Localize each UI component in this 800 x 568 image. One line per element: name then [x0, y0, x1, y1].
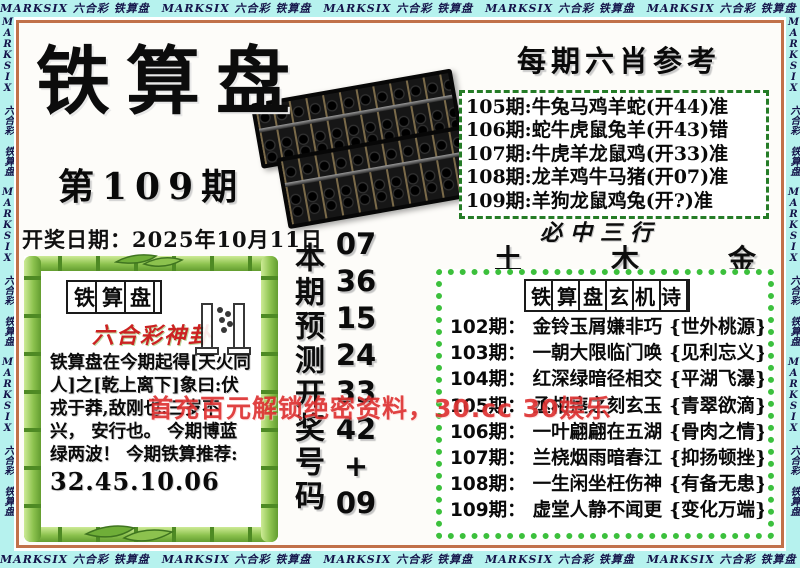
- mini-abacus-icon: [188, 302, 252, 358]
- bamboo-leaf-icon: [114, 250, 184, 276]
- poem-verse: 一生闲坐枉伤神: [533, 472, 663, 498]
- marquee-band-left: MARKSIX 六合彩 铁算盘 MARKSIX 六合彩 铁算盘 MARKSIX …: [0, 17, 14, 551]
- marquee-band-bottom: MARKSIX 六合彩 铁算盘 MARKSIX 六合彩 铁算盘 MARKSIX …: [0, 551, 800, 568]
- poem-row: 103期：一朝大限临门唤{见利忘义}: [450, 341, 764, 367]
- zodiac-verdict: 准: [709, 166, 728, 188]
- zodiac-verdict: 错: [709, 119, 728, 141]
- zodiac-animals: 牛兔马鸡羊蛇: [532, 96, 646, 118]
- poem-note: {青翠欲滴}: [669, 394, 764, 420]
- zodiac-verdict: 准: [709, 143, 728, 165]
- zodiac-period: 106期:: [466, 119, 532, 141]
- zodiac-open: (开07): [646, 166, 709, 188]
- predicted-number: 09: [336, 489, 376, 517]
- poem-verse: 虚堂人静不闻更: [533, 498, 663, 524]
- poem-row: 107期：兰桡烟雨暗春江{抑扬顿挫}: [450, 446, 764, 472]
- recommended-numbers: 32.45.10.06: [50, 467, 254, 496]
- poem-note: {骨肉之情}: [669, 420, 764, 446]
- zodiac-row: 108期:龙羊鸡牛马猪(开07)准: [466, 166, 762, 189]
- predicted-number: 15: [336, 304, 376, 332]
- zodiac-row: 107期:牛虎羊龙鼠鸡(开33)准: [466, 143, 762, 166]
- zodiac-verdict: 准: [694, 190, 713, 212]
- bamboo-leaf-icon: [84, 520, 174, 550]
- poem-verse: 金铃玉屑嫌非巧: [533, 315, 663, 341]
- poem-note: {有备无患}: [669, 472, 764, 498]
- poem-period: 103期：: [450, 341, 526, 367]
- mystery-poem-title: 铁算盘玄机诗: [524, 279, 690, 312]
- zodiac-period: 109期:: [466, 190, 532, 212]
- hexagram-box-subtitle: 六合彩神卦: [92, 318, 254, 350]
- zodiac-animals: 蛇牛虎鼠兔羊: [532, 119, 646, 141]
- poem-period: 108期：: [450, 472, 526, 498]
- zodiac-period: 108期:: [466, 166, 532, 188]
- predicted-number: 07: [336, 230, 376, 258]
- poem-note: {抑扬顿挫}: [669, 446, 764, 472]
- six-zodiac-title: 每期六肖参考: [468, 38, 770, 80]
- poem-verse: 兰桡烟雨暗春江: [533, 446, 663, 472]
- bamboo-pole-left: [24, 256, 41, 542]
- poem-period: 109期：: [450, 498, 526, 524]
- hexagram-box-tag: 铁算盘: [66, 280, 162, 314]
- zodiac-animals: 牛虎羊龙鼠鸡: [532, 143, 646, 165]
- six-zodiac-box: 105期:牛兔马鸡羊蛇(开44)准 106期:蛇牛虎鼠兔羊(开43)错 107期…: [459, 90, 769, 219]
- lottery-flyer: { "band": { "pattern": "MARKSIX 六合彩 铁算盘"…: [0, 0, 800, 568]
- zodiac-period: 105期:: [466, 96, 532, 118]
- issue-number: 第109期: [58, 158, 245, 210]
- poem-note: {平湖飞瀑}: [669, 367, 764, 393]
- poem-period: 107期：: [450, 446, 526, 472]
- poem-note: {见利忘义}: [669, 341, 764, 367]
- zodiac-open: (开33): [646, 143, 709, 165]
- zodiac-animals: 羊狗龙鼠鸡兔: [532, 190, 646, 212]
- predicted-number: 36: [336, 267, 376, 295]
- poem-period: 102期：: [450, 315, 526, 341]
- poem-note: {世外桃源}: [669, 315, 764, 341]
- advert-watermark: 首充百元解锁绝密资料，30.cc 30娱乐: [148, 389, 611, 425]
- zodiac-open: (开?): [646, 190, 694, 212]
- zodiac-open: (开43): [646, 119, 709, 141]
- zodiac-period: 107期:: [466, 143, 532, 165]
- poem-row: 102期：金铃玉屑嫌非巧{世外桃源}: [450, 315, 764, 341]
- zodiac-row: 109期:羊狗龙鼠鸡兔(开?)准: [466, 190, 762, 213]
- predicted-number: 24: [336, 341, 376, 369]
- poem-verse: 一朝大限临门唤: [533, 341, 663, 367]
- marquee-band-right: MARKSIX 六合彩 铁算盘 MARKSIX 六合彩 铁算盘 MARKSIX …: [786, 17, 800, 551]
- page-title: 铁算盘: [36, 44, 346, 122]
- zodiac-open: (开44): [646, 96, 709, 118]
- zodiac-animals: 龙羊鸡牛马猪: [532, 166, 646, 188]
- prediction-numbers: 07 36 15 24 33 42 + 09: [330, 230, 382, 517]
- poem-row: 109期：虚堂人静不闻更{变化万端}: [450, 498, 764, 524]
- poem-row: 108期：一生闲坐枉伤神{有备无患}: [450, 472, 764, 498]
- plus-sign: +: [344, 452, 368, 480]
- poem-note: {变化万端}: [669, 498, 764, 524]
- zodiac-verdict: 准: [709, 96, 728, 118]
- zodiac-row: 106期:蛇牛虎鼠兔羊(开43)错: [466, 119, 762, 142]
- zodiac-row: 105期:牛兔马鸡羊蛇(开44)准: [466, 96, 762, 119]
- marquee-band-top: MARKSIX 六合彩 铁算盘 MARKSIX 六合彩 铁算盘 MARKSIX …: [0, 0, 800, 17]
